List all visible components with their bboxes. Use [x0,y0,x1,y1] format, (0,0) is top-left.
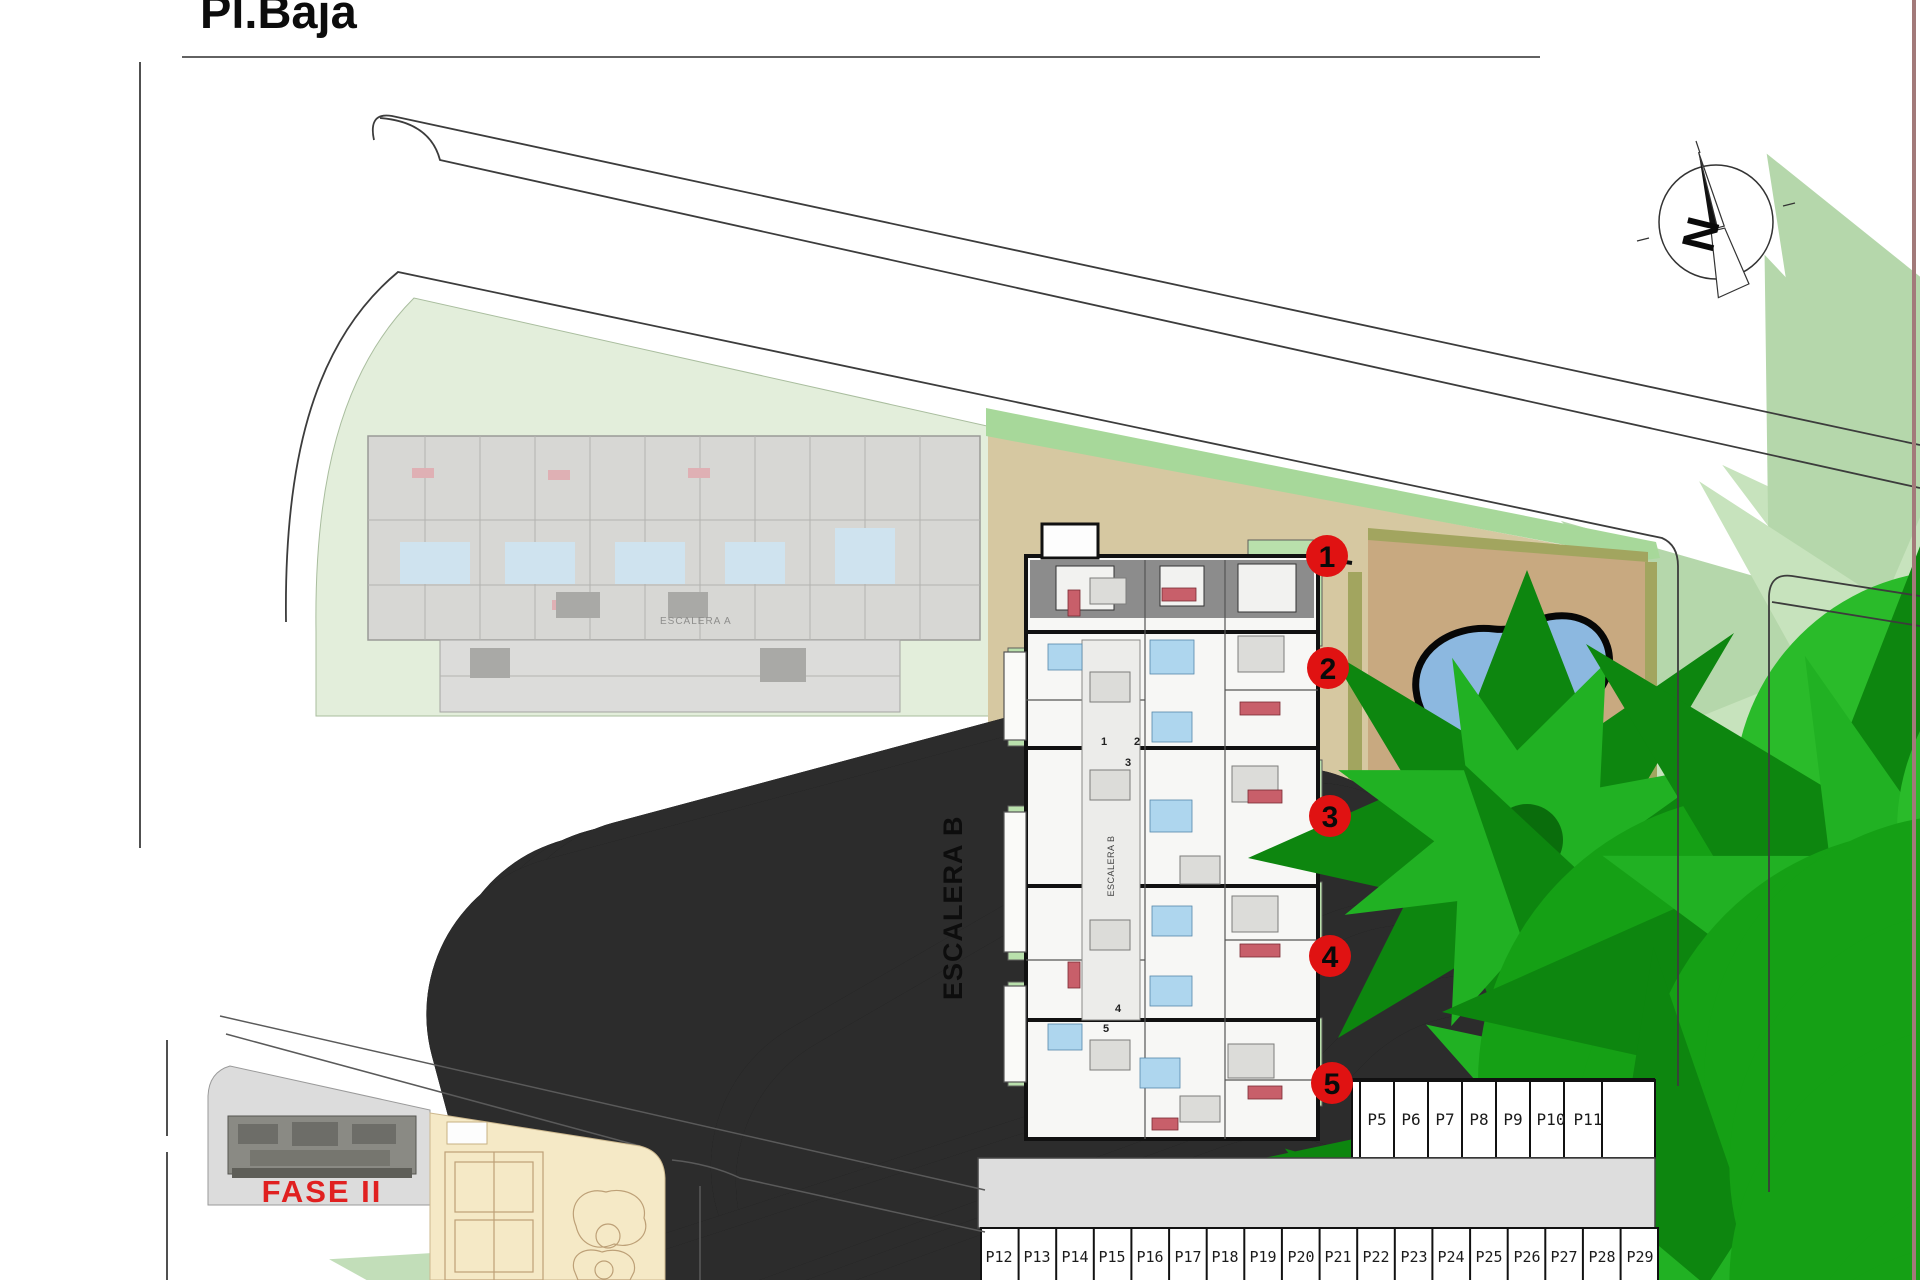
parking-stall-p17: P17 [1174,1248,1201,1266]
parking-stall-p18: P18 [1211,1248,1238,1266]
parking-bottom-row: P12 P13 P14 P15 P16 P17 P18 P19 P20 P21 … [981,1228,1658,1280]
building-escalera-b: ESCALERA B [1004,524,1352,1139]
unit-marker-3: 3 [1309,795,1351,837]
parking-stall-p27: P27 [1550,1248,1577,1266]
title-block: Pl.Baja [182,0,1540,57]
key-map-notch [447,1122,487,1144]
right-edge-border [1912,0,1916,1280]
site-plan-page: ESCALERA A [0,0,1920,1280]
unit-marker-5: 5 [1311,1062,1353,1104]
parking-stall-p5: P5 [1367,1110,1386,1129]
parking-stall-p9: P9 [1503,1110,1522,1129]
parking-stall-p29: P29 [1626,1248,1653,1266]
parking-stall-p20: P20 [1287,1248,1314,1266]
plan-unit-number-1: 1 [1101,736,1107,748]
parking-stall-p22: P22 [1362,1248,1389,1266]
parking-stall-p15: P15 [1098,1248,1125,1266]
escalera-b-core-label: ESCALERA B [1106,835,1116,896]
unit-marker-2: 2 [1307,647,1349,689]
key-map-fase2-building [228,1116,416,1178]
left-terraces [1004,652,1026,1082]
parking-stall-p14: P14 [1061,1248,1088,1266]
access-road [978,1158,1655,1228]
parking-stall-p13: P13 [1023,1248,1050,1266]
parking-stall-p6: P6 [1401,1110,1420,1129]
parking-stall-p10: P10 [1537,1110,1566,1129]
parking-stall-p7: P7 [1435,1110,1454,1129]
parking-right-row: P5 P6 P7 P8 P9 P10 P11 [1352,1080,1655,1158]
faded-building-escalera-a: ESCALERA A [368,436,980,712]
parking-stall-p8: P8 [1469,1110,1488,1129]
svg-text:2: 2 [1320,653,1337,686]
plan-unit-number-2: 2 [1134,736,1140,748]
svg-text:1: 1 [1319,541,1336,574]
plan-unit-number-5: 5 [1103,1023,1109,1035]
parking-stall-p11: P11 [1574,1110,1603,1129]
parking-stall-p19: P19 [1249,1248,1276,1266]
unit-marker-4: 4 [1309,935,1351,977]
svg-text:3: 3 [1322,801,1339,834]
site-plan-drawing: ESCALERA A [0,0,1920,1280]
plan-unit-number-3: 3 [1125,757,1131,769]
parking-stall-p28: P28 [1588,1248,1615,1266]
page-title: Pl.Baja [200,0,358,38]
parking-stall-p16: P16 [1136,1248,1163,1266]
svg-text:5: 5 [1324,1068,1341,1101]
svg-text:4: 4 [1322,941,1339,974]
entry-gate [1042,524,1098,558]
parking-stall-p25: P25 [1475,1248,1502,1266]
unit-marker-1: 1 [1306,535,1348,577]
parking-stall-p12: P12 [985,1248,1012,1266]
plan-unit-number-4: 4 [1115,1003,1122,1015]
escalera-b-label: ESCALERA B [938,815,968,1000]
parking-stall-p21: P21 [1324,1248,1351,1266]
parking-stall-p24: P24 [1437,1248,1464,1266]
fase-ii-label: FASE II [262,1174,383,1209]
parking-stall-p23: P23 [1400,1248,1427,1266]
parking-stall-p26: P26 [1513,1248,1540,1266]
escalera-a-label: ESCALERA A [660,616,732,627]
